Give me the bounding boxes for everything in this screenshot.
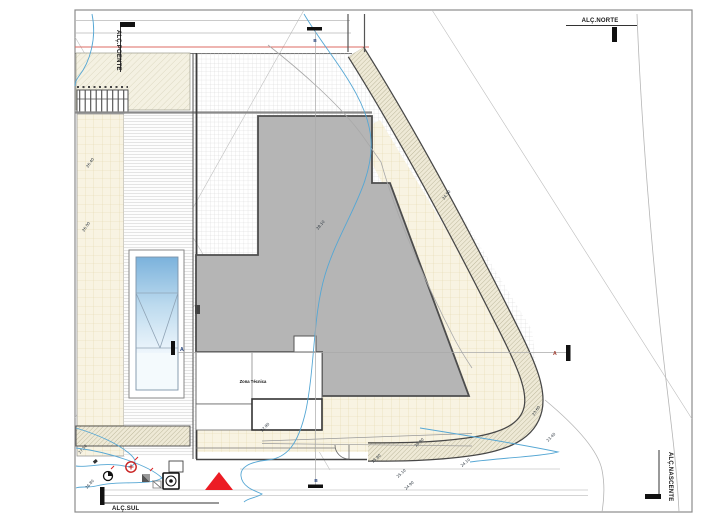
section-a-left-label: A	[180, 347, 184, 353]
alc-sul-label: ALÇ.SUL	[112, 506, 140, 512]
architectural-site-plan: Zona Técnica	[0, 0, 705, 529]
section-a-right-label: A	[553, 351, 557, 357]
section-b-top-bar	[307, 27, 322, 31]
section-b-bottom-bar	[308, 485, 323, 489]
utility-box-icon	[163, 473, 179, 489]
junction-box	[169, 461, 183, 472]
pool	[129, 250, 184, 398]
skylight	[294, 336, 316, 352]
pergola-slats	[77, 90, 128, 112]
southwest-wall-hatch	[76, 426, 190, 446]
alc-poente-label: ALÇ.POENTE	[115, 30, 121, 71]
zona-tecnica-block: Zona Técnica	[196, 352, 322, 430]
zona-tecnica-label: Zona Técnica	[240, 379, 267, 384]
site-plan-canvas: Zona Técnica	[0, 0, 705, 529]
section-a-right-bar	[566, 345, 571, 361]
alc-nascente-label: ALÇ.NASCENTE	[667, 452, 673, 501]
section-a-left-bar	[171, 341, 175, 355]
roof-access-marker	[195, 305, 200, 314]
alc-norte-label: ALÇ.NORTE	[582, 18, 619, 24]
